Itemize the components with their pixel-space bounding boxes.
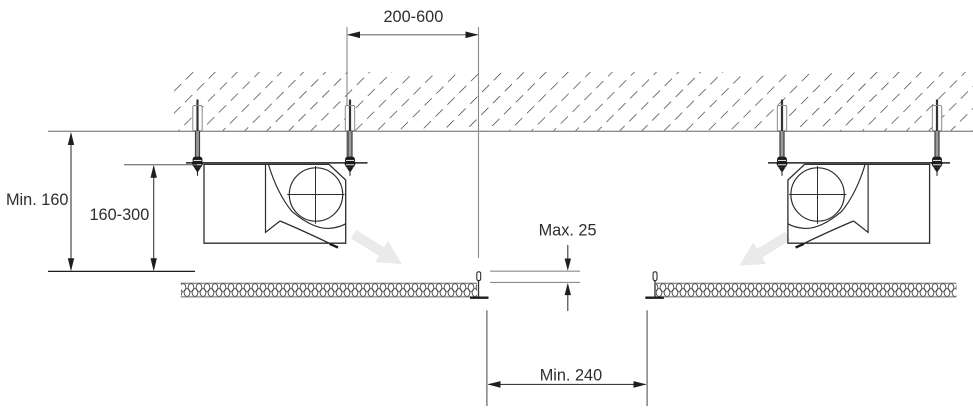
svg-text:200-600: 200-600 — [384, 8, 444, 26]
svg-text:Min. 160: Min. 160 — [6, 191, 68, 209]
svg-text:Max. 25: Max. 25 — [539, 222, 597, 240]
svg-text:Min. 240: Min. 240 — [540, 367, 602, 385]
svg-text:160-300: 160-300 — [90, 206, 150, 224]
